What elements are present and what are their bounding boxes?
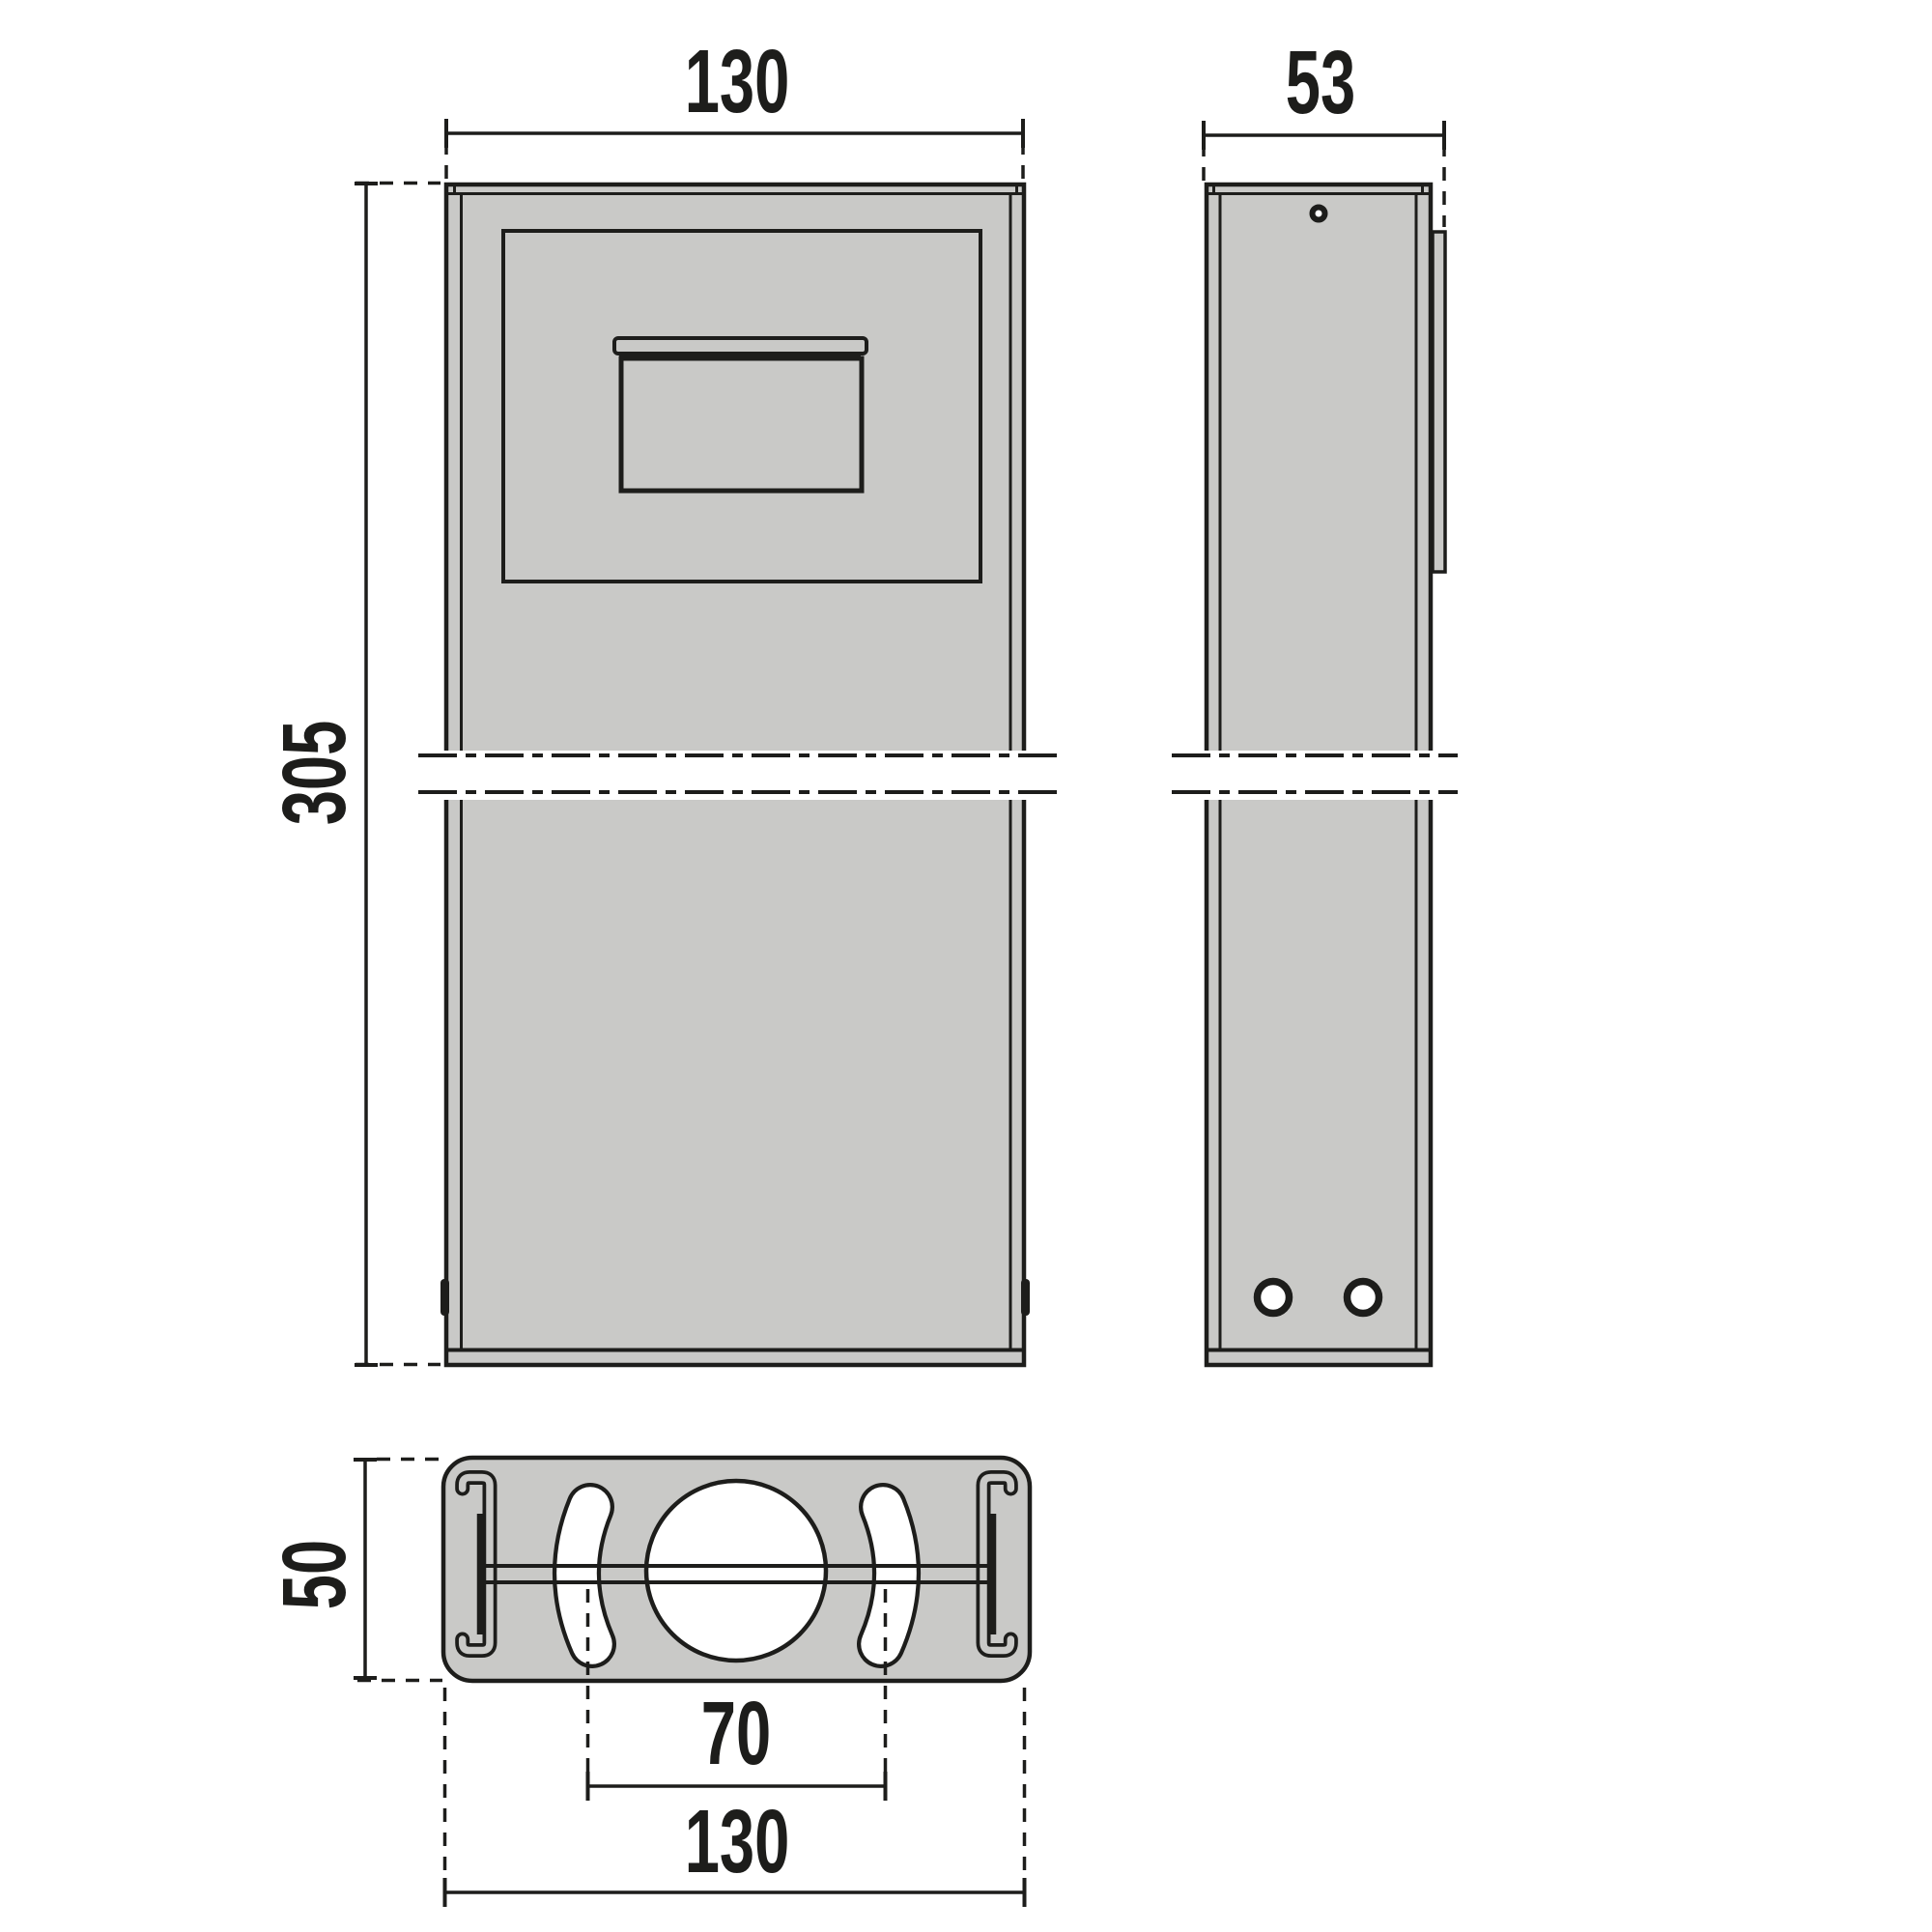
svg-text:130: 130 — [685, 1792, 790, 1892]
svg-text:53: 53 — [1286, 33, 1355, 133]
svg-text:305: 305 — [265, 721, 365, 826]
svg-text:70: 70 — [701, 1684, 771, 1784]
svg-text:130: 130 — [685, 32, 790, 132]
svg-text:50: 50 — [265, 1540, 365, 1609]
